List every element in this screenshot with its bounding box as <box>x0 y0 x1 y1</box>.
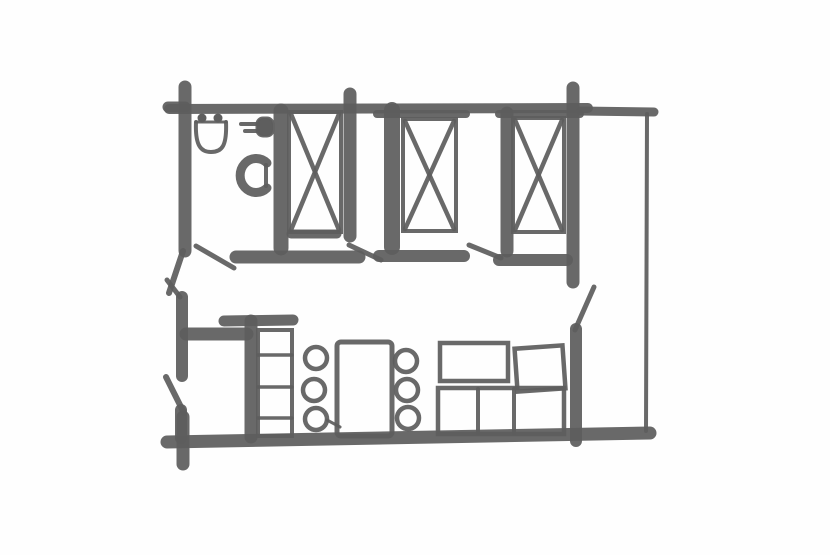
top-wall <box>169 108 588 109</box>
top-wall-right <box>580 111 654 112</box>
kitchen-counter <box>258 330 292 436</box>
toilet-bowl <box>240 159 267 193</box>
right-outer-wall <box>646 114 647 431</box>
sink-tap-dot-right <box>214 114 223 123</box>
wall-tap-body <box>257 118 273 136</box>
sofa-seat <box>438 388 564 434</box>
chair-left-3 <box>305 408 327 430</box>
dining-table <box>337 342 392 436</box>
door-swing-room3 <box>469 245 501 258</box>
chair-right-1 <box>395 350 417 372</box>
sofa-back-cushion-right <box>515 345 566 391</box>
kitchen-cap-wall <box>224 320 293 321</box>
chair-left-2 <box>303 379 325 401</box>
sofa-back-cushion-left <box>440 343 508 381</box>
chair-right-2 <box>396 379 418 401</box>
floorplan-svg <box>0 0 830 555</box>
chair-left-1 <box>305 347 327 369</box>
door-swing-entry <box>166 377 184 413</box>
sink-tap-dot-left <box>198 114 207 123</box>
bottom-wall <box>167 433 650 442</box>
chair-right-3 <box>397 407 419 429</box>
floorplan-image <box>0 0 830 555</box>
sink-bowl <box>196 122 226 152</box>
door-swing-living <box>575 287 594 330</box>
door-swing-bathroom <box>196 246 234 268</box>
